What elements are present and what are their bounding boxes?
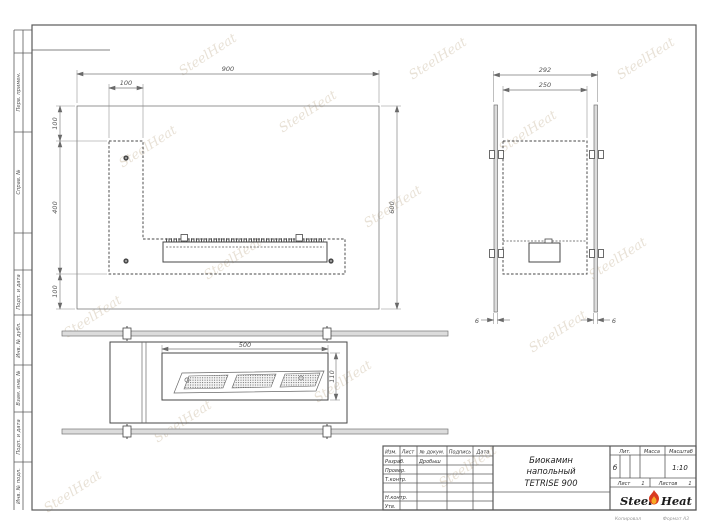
side-view: 292 250 6 6 bbox=[475, 66, 616, 325]
watermark-text: SteelHeat bbox=[496, 107, 560, 156]
footer-annotations: Копировал Формат А3 bbox=[615, 516, 689, 522]
dim-front-left-column: 100 400 100 bbox=[51, 106, 107, 309]
margin-label-inv-podl: Инв. № подл. bbox=[16, 468, 22, 504]
svg-text:6: 6 bbox=[475, 317, 479, 325]
scale-value: 1:10 bbox=[672, 464, 688, 472]
svg-text:900: 900 bbox=[222, 65, 234, 73]
margin-label-sprav-no: Справ. № bbox=[16, 169, 22, 194]
mass-label: Масса bbox=[644, 449, 660, 455]
dim-glass-thickness-left: 6 bbox=[475, 313, 510, 325]
watermark-text: SteelHeat bbox=[151, 397, 215, 446]
watermark-text: SteelHeat bbox=[311, 357, 375, 406]
glass-panel-left bbox=[494, 105, 498, 312]
sheets-label: Листов bbox=[658, 481, 678, 487]
svg-text:напольный: напольный bbox=[526, 466, 576, 476]
margin-label-vzam-inv: Взам. инв. № bbox=[16, 370, 22, 405]
margin-label-perv-primen: Перв. примен. bbox=[16, 73, 22, 112]
svg-text:110: 110 bbox=[328, 370, 336, 382]
sheet-value: 1 bbox=[641, 481, 644, 487]
watermark-text: SteelHeat bbox=[406, 34, 470, 83]
row-razrab-label: Разраб. bbox=[385, 459, 405, 465]
margin-label-podp-data-2: Подп. и дата bbox=[16, 419, 22, 454]
title-block: Изм. Лист № докум. Подпись Дата Разраб. … bbox=[383, 446, 696, 510]
col-list: Лист bbox=[401, 450, 416, 456]
svg-text:250: 250 bbox=[539, 81, 551, 89]
watermark-text: SteelHeat bbox=[526, 307, 590, 356]
burner-grille bbox=[174, 371, 324, 393]
col-dokum: № докум. bbox=[419, 450, 445, 456]
svg-text:100: 100 bbox=[51, 117, 59, 129]
steelheat-logo: Steel Heat bbox=[620, 490, 693, 508]
col-izm: Изм. bbox=[385, 450, 397, 456]
svg-text:TETRISE 900: TETRISE 900 bbox=[524, 478, 577, 488]
burner-tab bbox=[181, 235, 188, 242]
watermark-text: SteelHeat bbox=[276, 87, 340, 136]
svg-text:100: 100 bbox=[51, 285, 59, 297]
svg-text:100: 100 bbox=[120, 79, 132, 87]
svg-text:Биокамин: Биокамин bbox=[529, 455, 573, 465]
dim-front-leg: 100 bbox=[109, 79, 143, 138]
logo-steel: Steel bbox=[620, 494, 653, 508]
row-nkontr-label: Н.контр. bbox=[385, 495, 407, 501]
scale-label: Масштаб bbox=[669, 449, 693, 455]
margin-label-inv-dubl: Инв. № дубл. bbox=[16, 322, 22, 358]
sheets-value: 1 bbox=[688, 481, 691, 487]
watermark-text: SteelHeat bbox=[614, 34, 678, 83]
svg-text:292: 292 bbox=[539, 66, 551, 74]
row-tkontr-label: Т.контр. bbox=[385, 477, 407, 483]
glass-edge-back bbox=[62, 429, 448, 434]
footer-kopiroval: Копировал bbox=[615, 516, 641, 522]
lit-value: б bbox=[613, 464, 618, 472]
top-view: 500 110 bbox=[62, 326, 448, 439]
drawing-canvas: SteelHeat SteelHeat SteelHeat SteelHeat … bbox=[0, 0, 704, 530]
svg-text:500: 500 bbox=[239, 341, 251, 349]
col-data: Дата bbox=[476, 450, 490, 456]
watermark-layer: SteelHeat SteelHeat SteelHeat SteelHeat … bbox=[41, 30, 678, 516]
row-prover-label: Провер. bbox=[385, 468, 406, 474]
watermark-text: SteelHeat bbox=[41, 467, 105, 516]
svg-text:400: 400 bbox=[51, 201, 59, 213]
flame-icon bbox=[649, 490, 659, 505]
mounting-holes bbox=[123, 155, 333, 263]
col-podpis: Подпись bbox=[449, 450, 472, 456]
drawing-sheet: SteelHeat SteelHeat SteelHeat SteelHeat … bbox=[0, 0, 704, 530]
glass-panel-right bbox=[594, 105, 598, 312]
watermark-text: SteelHeat bbox=[116, 122, 180, 171]
document-title: Биокамин напольный TETRISE 900 bbox=[524, 455, 577, 488]
logo-heat: Heat bbox=[660, 494, 693, 508]
sheet-label: Лист bbox=[617, 481, 632, 487]
burner-tab bbox=[296, 235, 303, 242]
lit-label: Лит. bbox=[618, 449, 631, 455]
svg-text:6: 6 bbox=[612, 317, 616, 325]
row-utv-label: Утв. bbox=[385, 504, 396, 510]
glass-edge-front bbox=[62, 331, 448, 336]
margin-label-podp-data-1: Подп. и дата bbox=[16, 274, 22, 309]
row-razrab-name: Дробыш bbox=[418, 459, 441, 465]
footer-format: Формат А3 bbox=[663, 516, 689, 522]
dim-burner-width: 500 bbox=[162, 341, 328, 353]
svg-text:600: 600 bbox=[388, 201, 396, 213]
margin-strip: Перв. примен. Справ. № Подп. и дата Инв.… bbox=[14, 30, 32, 510]
